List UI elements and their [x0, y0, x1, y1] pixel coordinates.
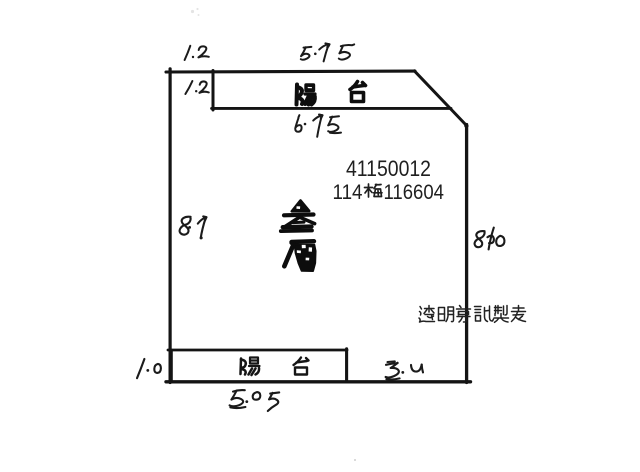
svg-text:116604: 116604: [384, 181, 445, 204]
svg-text:41150012: 41150012: [346, 156, 431, 181]
svg-text:114: 114: [333, 181, 363, 204]
